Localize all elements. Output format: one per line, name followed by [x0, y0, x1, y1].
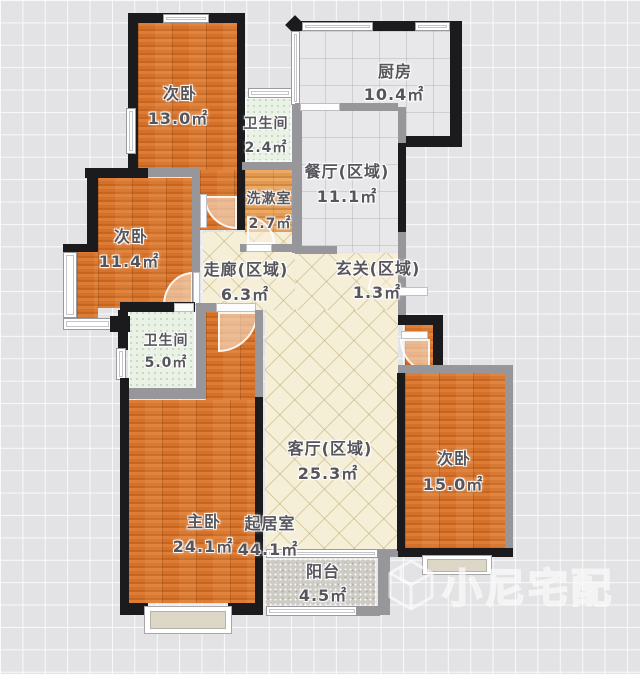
door-entrance: [398, 287, 428, 296]
floor-master-bedroom: [128, 400, 255, 603]
room-label-bathroom-small-area: 2.4㎡: [245, 137, 288, 157]
room-label-bedroom-top-name: 次卧: [163, 80, 197, 104]
watermark-text: 小尼宅配: [442, 556, 614, 614]
room-label-bedroom-left-area: 11.4㎡: [99, 248, 159, 272]
room-label-bedroom-right-area: 15.0㎡: [423, 471, 483, 495]
room-label-washroom-name: 洗漱室: [247, 188, 292, 208]
room-label-washroom-area: 2.7㎡: [249, 213, 292, 233]
wall-bedroom-right-top: [398, 365, 513, 373]
room-label-kitchen-name: 厨房: [378, 58, 412, 82]
wall-bathroom-master-bottom: [128, 388, 206, 399]
door-bedroom-left: [193, 272, 200, 305]
room-label-living-zone-name: 客厅(区域): [288, 435, 373, 459]
bay-window-master: [150, 611, 226, 629]
door-kitchen: [300, 103, 340, 111]
room-label-balcony-name: 阳台: [306, 558, 340, 582]
window-kitchen-top-1: [302, 22, 373, 31]
room-label-bedroom-right-name: 次卧: [437, 445, 471, 469]
room-label-corridor-zone-area: 6.3㎡: [221, 281, 269, 305]
room-label-corridor-zone-name: 走廊(区域): [204, 256, 289, 280]
wall-kitchen-bottom: [398, 136, 462, 147]
wall-bedroom-right-left: [397, 373, 405, 551]
wall-bathroom-master-right: [196, 310, 206, 392]
window-bathroom-small-top: [248, 88, 292, 98]
wall-master-right: [255, 397, 263, 615]
room-label-dining-zone-name: 餐厅(区域): [305, 158, 390, 182]
room-label-bathroom-master-name: 卫生间: [144, 330, 189, 350]
floor-plan: 次卧 13.0㎡ 卫生间 2.4㎡ 厨房 10.4㎡ 餐厅(区域) 11.1㎡ …: [0, 0, 640, 674]
wall-dining-right-black: [398, 143, 406, 232]
wall-bedrooms-divider-gray: [148, 168, 200, 177]
window-bedroom-top-top: [163, 14, 209, 23]
wall-bathroom-master-left: [118, 310, 128, 350]
floor-bedroom-left-bay: [77, 250, 98, 318]
room-label-master-bedroom-area: 24.1㎡: [173, 533, 233, 557]
wall-bedroom-right-right: [505, 365, 513, 557]
room-label-master-bedroom-name: 主卧: [187, 508, 221, 532]
window-balcony-bottom: [266, 606, 358, 616]
window-bedroom-left-bottom: [63, 318, 112, 330]
floor-bathroom-master: [128, 310, 196, 390]
wall-bedroom-left-left: [87, 168, 98, 252]
wall-balcony-bottom-end: [356, 606, 380, 616]
room-label-entry-zone-name: 玄关(区域): [336, 255, 421, 279]
room-label-entry-zone-area: 1.3㎡: [353, 279, 401, 303]
wall-master-left: [120, 378, 129, 615]
window-bathroom-master-left: [116, 348, 126, 380]
room-label-bedroom-left-name: 次卧: [114, 223, 148, 247]
room-label-living-room-area: 44.1㎡: [238, 536, 298, 560]
watermark-cube-logo-icon: [388, 559, 434, 611]
wall-master-strip-right: [255, 310, 263, 397]
room-label-dining-zone-area: 11.1㎡: [317, 183, 377, 207]
room-label-bathroom-small-name: 卫生间: [244, 113, 289, 133]
wall-dining-entry-stub: [295, 246, 337, 254]
window-bedroom-left-bay: [63, 252, 77, 318]
window-bedroom-top-left: [126, 108, 136, 154]
window-kitchen-left: [291, 31, 300, 105]
door-bedroom-top: [200, 194, 207, 228]
room-label-balcony-area: 4.5㎡: [299, 582, 347, 606]
door-bathroom-master: [174, 303, 194, 312]
wall-bedroom-left-jog: [63, 244, 98, 252]
wall-dining-right-upper: [398, 107, 406, 143]
wall-master-bottom-right: [228, 603, 263, 615]
room-label-living-zone-area: 25.3㎡: [298, 460, 358, 484]
room-label-kitchen-area: 10.4㎡: [364, 81, 424, 105]
wall-kitchen-right: [450, 21, 462, 147]
watermark: 小尼宅配: [388, 556, 614, 614]
room-label-living-room-name: 起居室: [244, 510, 295, 534]
room-label-bathroom-master-area: 5.0㎡: [145, 352, 188, 372]
door-washroom: [246, 244, 272, 252]
door-bedroom-right: [401, 331, 428, 339]
room-label-bedroom-top-area: 13.0㎡: [148, 105, 208, 129]
wall-washroom-right: [292, 103, 302, 253]
window-kitchen-top-2: [415, 22, 450, 31]
